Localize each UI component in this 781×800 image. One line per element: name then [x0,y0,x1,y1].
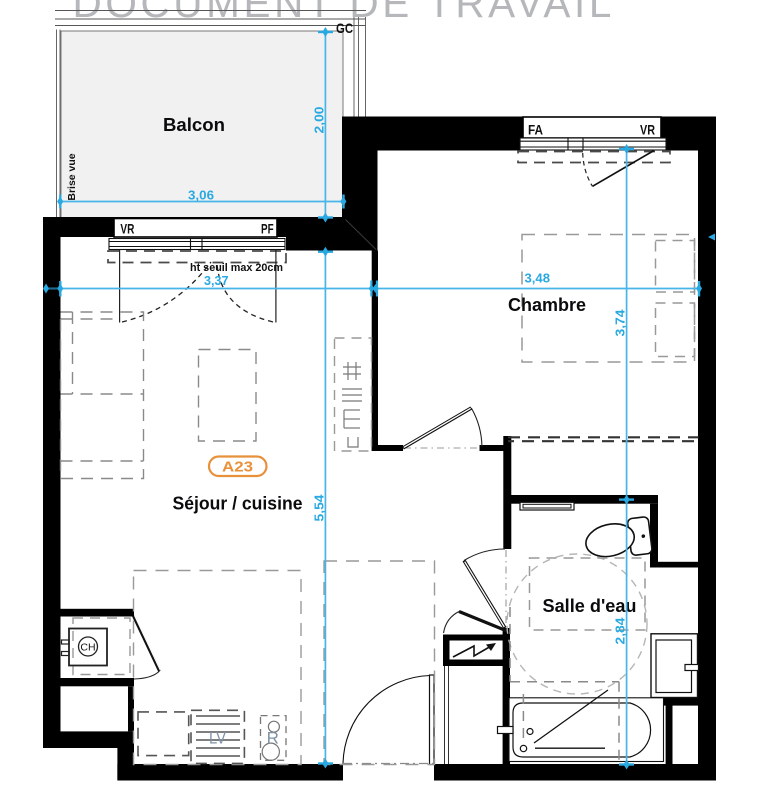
svg-text:3,48: 3,48 [525,271,551,286]
svg-text:VR: VR [640,122,655,138]
svg-text:GC: GC [336,20,353,36]
svg-text:3,37: 3,37 [204,273,229,288]
svg-text:3,74: 3,74 [613,309,628,337]
svg-text:Salle d'eau: Salle d'eau [543,596,637,616]
svg-text:VR: VR [120,221,134,237]
svg-text:PF: PF [261,221,274,237]
svg-text:Brise vue: Brise vue [66,153,78,200]
svg-text:Balcon: Balcon [163,115,225,135]
svg-text:CH: CH [80,642,95,654]
svg-text:2,84: 2,84 [613,617,628,645]
svg-text:FA: FA [528,122,543,138]
svg-text:Chambre: Chambre [508,295,586,315]
svg-text:LV: LV [209,729,227,748]
svg-text:3,06: 3,06 [188,188,214,203]
svg-text:2,00: 2,00 [312,107,327,134]
svg-text:R: R [267,729,279,748]
svg-text:Séjour / cuisine: Séjour / cuisine [173,494,303,514]
svg-text:A23: A23 [222,459,253,476]
svg-text:5,54: 5,54 [312,494,327,522]
